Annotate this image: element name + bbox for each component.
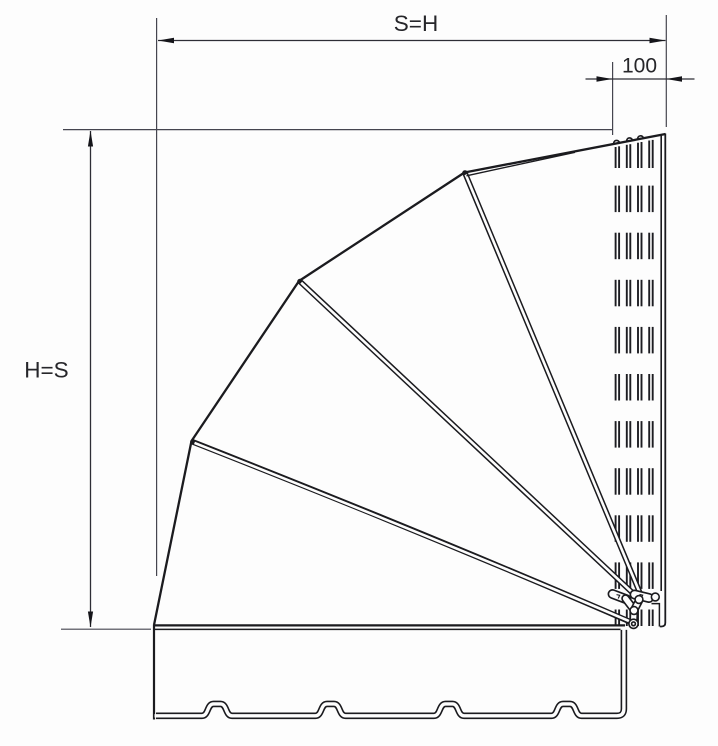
svg-text:H=S: H=S: [24, 358, 68, 383]
svg-text:100: 100: [622, 55, 657, 78]
svg-text:S=H: S=H: [394, 11, 438, 36]
